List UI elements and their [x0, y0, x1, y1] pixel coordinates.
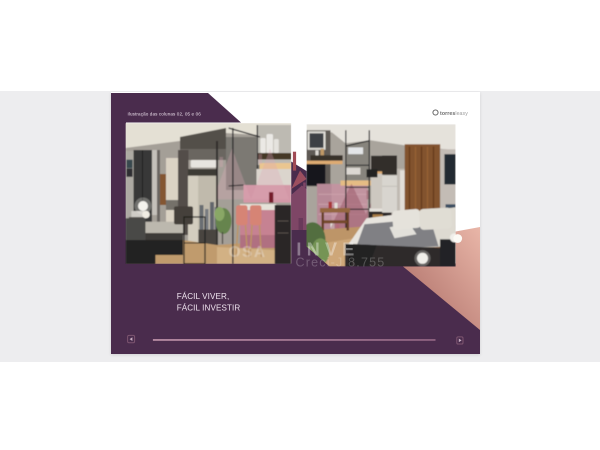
svg-text:torresleasy: torresleasy [440, 111, 468, 117]
svg-text:Ilustração das colunas 02, 05: Ilustração das colunas 02, 05 e 06 [128, 111, 202, 116]
svg-text:FÁCIL INVESTIR: FÁCIL INVESTIR [177, 304, 241, 313]
svg-text:Creci-J 8.755: Creci-J 8.755 [296, 256, 386, 270]
svg-text:FÁCIL VIVER,: FÁCIL VIVER, [177, 292, 230, 301]
